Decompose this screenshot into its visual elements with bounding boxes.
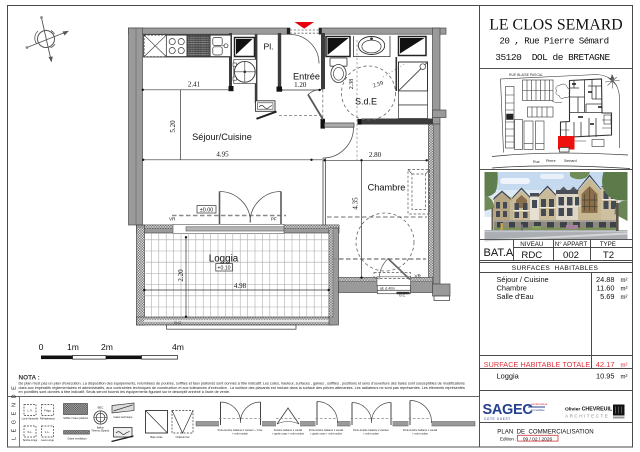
svg-text:PF: PF [271,217,277,222]
svg-text:L.L.: L.L. [45,430,50,434]
svg-text:VR: VR [169,217,176,222]
svg-text:Thermo./Epand.: Thermo./Epand. [91,429,110,433]
svg-text:1.20: 1.20 [294,81,307,89]
svg-text:m²: m² [621,375,628,381]
svg-text:BAT.A: BAT.A [484,247,514,259]
svg-text:m²: m² [621,295,628,301]
svg-text:RUE BLAISE PASCAL: RUE BLAISE PASCAL [509,73,543,77]
svg-text:0: 0 [39,342,44,352]
svg-text:G.C.: G.C. [174,320,182,325]
svg-text:4.98: 4.98 [234,282,247,290]
svg-text:2.80: 2.80 [369,151,382,159]
svg-text:SURFACE HABITABLE TOTALE: SURFACE HABITABLE TOTALE [484,360,591,369]
svg-text:20 , Rue Pierre Sémard: 20 , Rue Pierre Sémard [499,36,608,47]
svg-text:2.41: 2.41 [188,81,201,89]
svg-text:4.95: 4.95 [216,151,229,159]
svg-text:Gaine ventilation: Gaine ventilation [67,437,87,441]
svg-text:002: 002 [563,250,579,261]
svg-text:42.17: 42.17 [596,360,615,369]
svg-text:NOTA :: NOTA : [19,375,40,382]
svg-text:Frigo: Frigo [44,408,51,412]
svg-text:VR: VR [415,274,422,279]
svg-text:Soffite / Faux-plafond: Soffite / Faux-plafond [63,416,88,420]
svg-text:35120 DOL de BRETAGNE: 35120 DOL de BRETAGNE [495,52,610,63]
svg-text:2.20: 2.20 [177,269,185,282]
svg-text:Chambre: Chambre [368,183,406,193]
svg-text:ARCHITECTE: ARCHITECTE [565,414,609,419]
svg-text:Semard: Semard [564,159,577,163]
svg-text:+ volet roulant: + volet roulant [363,432,379,435]
svg-text:T2: T2 [603,250,614,261]
svg-text:10.95: 10.95 [596,372,615,381]
svg-text:Réfrigérateur: Réfrigérateur [40,417,55,421]
svg-text:+ garde corps + volet roulant: + garde corps + volet roulant [310,432,342,435]
svg-text:+ volet roulant: + volet roulant [412,432,428,435]
svg-text:5.69: 5.69 [600,292,614,301]
svg-text:SAGEC: SAGEC [483,402,534,418]
svg-text:±0.00: ±0.00 [200,208,213,214]
svg-text:G.C.: G.C. [399,294,406,298]
svg-text:2.38: 2.38 [349,79,355,90]
svg-text:S.L.: S.L. [27,430,33,434]
svg-text:Pl.: Pl. [264,42,274,52]
svg-text:2m: 2m [101,342,113,352]
svg-text:Edition :: Edition : [500,436,517,441]
svg-text:L.V.: L.V. [27,408,32,412]
svg-text:RDC: RDC [521,250,542,261]
svg-text:Loggia: Loggia [209,253,239,264]
svg-text:LE CLOS SEMARD: LE CLOS SEMARD [489,17,622,34]
svg-text:immobilier: immobilier [531,408,545,412]
svg-text:5.20: 5.20 [169,120,177,133]
svg-text:Olivier CHEVREUIL: Olivier CHEVREUIL [565,407,613,413]
svg-text:Lave-Linge: Lave-Linge [41,438,54,442]
svg-text:Loggia: Loggia [497,372,520,381]
svg-text:Sèche-Linge: Sèche-Linge [23,438,38,442]
svg-text:+0.10: +0.10 [217,266,230,272]
svg-text:m²: m² [621,278,628,284]
svg-text:constructeur: constructeur [531,402,548,406]
svg-text:N° APPART: N° APPART [555,241,588,248]
svg-text:Séjour/Cuisine: Séjour/Cuisine [192,132,252,142]
svg-text:BEC: BEC [98,406,104,410]
svg-text:all. d.40m: all. d.40m [380,286,395,290]
svg-text:NIVEAU: NIVEAU [520,241,543,248]
svg-text:+ volet roulant: + volet roulant [232,432,248,435]
svg-text:Gaine technique: Gaine technique [114,415,133,419]
svg-text:en pointillés sont donnés à ti: en pointillés sont donnés à titre indica… [19,390,230,394]
svg-text:S.d.E: S.d.E [355,97,377,107]
svg-text:m²: m² [621,287,628,293]
svg-text:Rue: Rue [533,160,540,164]
svg-text:COTE OUEST: COTE OUEST [484,417,511,421]
svg-text:+ garde corps + volet roulant: + garde corps + volet roulant [272,432,304,435]
svg-text:1m: 1m [67,342,79,352]
svg-text:PLAN DE COMMERCIALISATION: PLAN DE COMMERCIALISATION [497,429,593,436]
svg-text:4m: 4m [172,342,184,352]
svg-text:Châssis fixe: Châssis fixe [176,435,191,439]
svg-text:SURFACES HABITABLES: SURFACES HABITABLES [512,265,599,272]
svg-text:Baie vitrée: Baie vitrée [150,435,163,439]
svg-text:Salle d'Eau: Salle d'Eau [497,292,534,301]
svg-text:L É G E N D E: L É G E N D E [11,385,18,440]
svg-text:4.35: 4.35 [352,197,360,210]
svg-text:Pierre: Pierre [546,159,556,163]
svg-text:Entrée: Entrée [293,72,320,82]
svg-text:m²: m² [621,363,628,369]
svg-text:TYPE: TYPE [600,241,616,248]
svg-text:Lave-Vaisselle: Lave-Vaisselle [22,417,39,421]
